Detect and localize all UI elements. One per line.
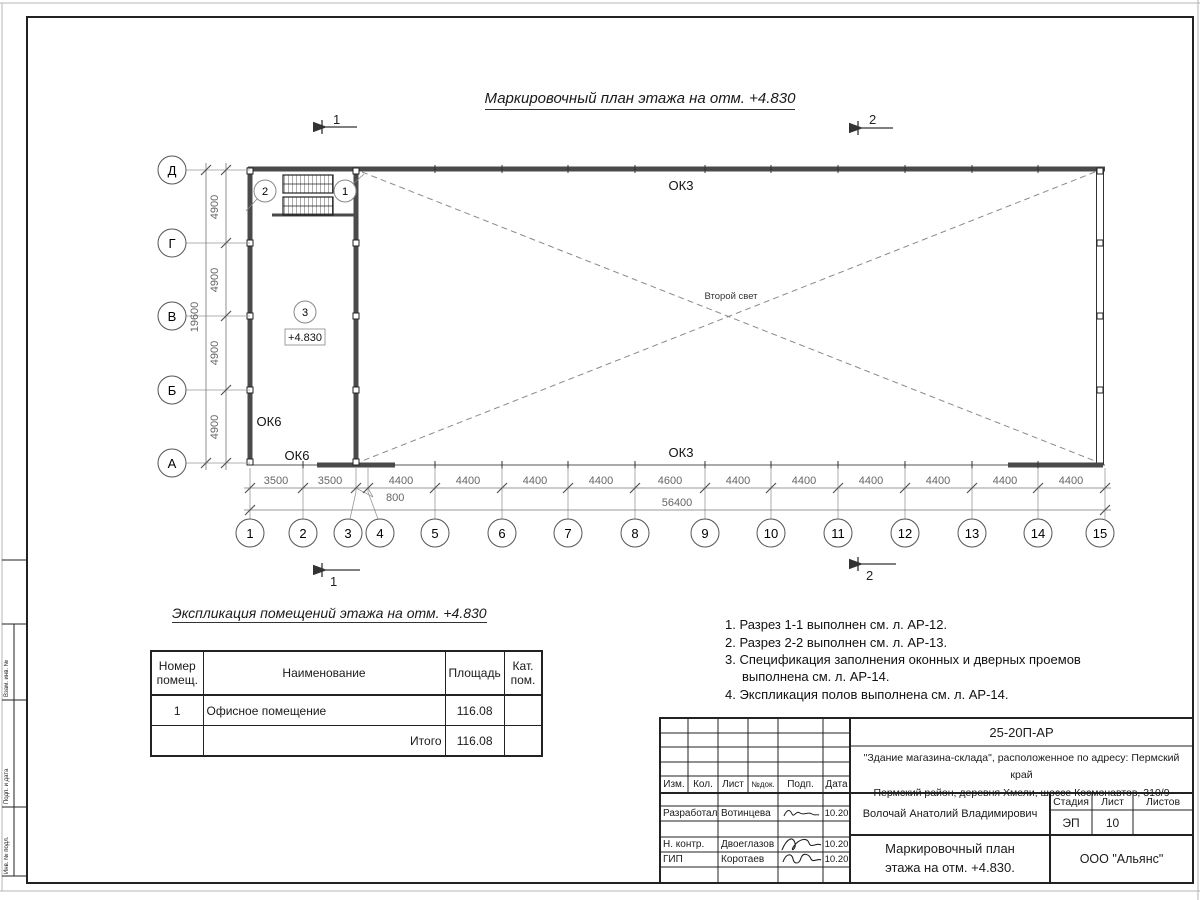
role-label: ГИП bbox=[663, 854, 718, 865]
signature-korotaev bbox=[779, 850, 823, 868]
col-axis-label: 8 bbox=[631, 526, 638, 541]
dim-total-label: 19600 bbox=[189, 302, 201, 333]
side-strip-label: Инв. № подл. bbox=[4, 837, 10, 874]
room-number-cell: 1 bbox=[151, 695, 203, 726]
window-label-ok6-lower: ОК6 bbox=[285, 448, 310, 463]
side-strip-label: Взам. инв. № bbox=[4, 660, 10, 697]
room-name-cell: Офисное помещение bbox=[203, 695, 445, 726]
dim-label: 4400 bbox=[993, 475, 1017, 487]
dim-label: 4400 bbox=[389, 475, 413, 487]
room-mark-2: 2 bbox=[262, 186, 268, 198]
sheet-value: 10 bbox=[1092, 810, 1133, 835]
table-header-row: Номер помещ. Наименование Площадь Кат. п… bbox=[151, 651, 542, 695]
rev-col-dok: №док. bbox=[748, 776, 778, 793]
col-header-category: Кат. пом. bbox=[504, 651, 542, 695]
room-area-cell: 116.08 bbox=[445, 695, 504, 726]
row-axis-label: Г bbox=[168, 236, 175, 251]
rev-col-podp: Подп. bbox=[778, 776, 823, 793]
col-axis-label: 11 bbox=[831, 526, 845, 541]
col-header-name: Наименование bbox=[203, 651, 445, 695]
wall-ticks bbox=[303, 165, 1038, 469]
company-name: ООО "Альянс" bbox=[1050, 835, 1193, 883]
empty-cell bbox=[151, 726, 203, 757]
page-title: Маркировочный план этажа на отм. +4.830 bbox=[390, 90, 890, 107]
section-mark-1-bottom: 1 bbox=[330, 574, 337, 589]
dim-label: 4400 bbox=[523, 475, 547, 487]
section-mark-1-top: 1 bbox=[333, 112, 340, 127]
walls bbox=[248, 167, 1105, 465]
col-axis-label: 7 bbox=[564, 526, 571, 541]
side-strip-grid bbox=[2, 560, 27, 876]
col-axis-label: 6 bbox=[498, 526, 505, 541]
dim-label: 4400 bbox=[859, 475, 883, 487]
role-name: Двоеглазов bbox=[721, 839, 779, 850]
table-total-row: Итого 116.08 bbox=[151, 726, 542, 757]
rev-col-izm: Изм. bbox=[660, 776, 688, 793]
dim-label: 4400 bbox=[926, 475, 950, 487]
row-axis-bubbles: Д Г В Б А bbox=[158, 156, 186, 477]
empty-cell bbox=[504, 726, 542, 757]
room-marks: 2 1 3 bbox=[246, 174, 364, 323]
dim-label: 4900 bbox=[209, 268, 221, 292]
role-label: Разработал bbox=[663, 808, 718, 819]
role-label: Н. контр. bbox=[663, 839, 718, 850]
role-date: 10.20 bbox=[823, 837, 850, 852]
signature-votintseva bbox=[781, 806, 821, 821]
drawing-title-line2: этажа на отм. +4.830. bbox=[850, 859, 1050, 878]
drawing-title-line1: Маркировочный план bbox=[850, 840, 1050, 859]
side-strip-label: Подп. и дата bbox=[4, 769, 10, 804]
column-markers bbox=[247, 168, 1103, 465]
note-item: 4. Экспликация полов выполнена см. л. АР… bbox=[725, 687, 1150, 704]
table-row: 1 Офисное помещение 116.08 bbox=[151, 695, 542, 726]
room-mark-3: 3 bbox=[302, 307, 308, 319]
col-axis-label: 15 bbox=[1093, 526, 1107, 541]
room-mark-1: 1 bbox=[342, 186, 348, 198]
explication-table: Номер помещ. Наименование Площадь Кат. п… bbox=[150, 650, 543, 757]
second-light-diagonals bbox=[362, 172, 1095, 461]
dim-label: 4400 bbox=[589, 475, 613, 487]
staircase bbox=[283, 175, 333, 215]
col-axis-bubbles: 1 2 3 4 5 6 7 8 9 10 11 12 13 14 15 bbox=[236, 519, 1114, 547]
sheet-label: Лист bbox=[1092, 793, 1133, 810]
section-mark-2-top: 2 bbox=[869, 112, 876, 127]
role-date: 10.20 bbox=[823, 806, 850, 821]
window-label-ok3-bottom: ОК3 bbox=[669, 445, 694, 460]
col-axis-label: 10 bbox=[764, 526, 778, 541]
col-axis-label: 14 bbox=[1031, 526, 1045, 541]
window-label-ok3-top: ОК3 bbox=[669, 178, 694, 193]
rev-col-kol: Кол. bbox=[688, 776, 718, 793]
role-name: Коротаев bbox=[721, 854, 779, 865]
col-axis-label: 12 bbox=[898, 526, 912, 541]
col-axis-label: 4 bbox=[376, 526, 383, 541]
dim-label: 4400 bbox=[792, 475, 816, 487]
window-label-ok6-upper: ОК6 bbox=[257, 414, 282, 429]
dim-label: 3500 bbox=[318, 475, 342, 487]
project-name-line1: "Здание магазина-склада", расположенное … bbox=[852, 750, 1191, 785]
col-axis-label: 1 bbox=[246, 526, 253, 541]
doc-number: 25-20П-АР bbox=[850, 718, 1193, 746]
dim-label: 4400 bbox=[456, 475, 480, 487]
role-date: 10.20 bbox=[823, 852, 850, 867]
elevation-label: +4.830 bbox=[288, 332, 322, 344]
row-axis-label: Д bbox=[168, 163, 177, 178]
explication-title: Экспликация помещений этажа на отм. +4.8… bbox=[172, 605, 487, 623]
notes-list: 1. Разрез 1-1 выполнен см. л. АР-12. 2. … bbox=[725, 617, 1150, 704]
dim-label: 4400 bbox=[726, 475, 750, 487]
col-header-area: Площадь bbox=[445, 651, 504, 695]
total-area-cell: 116.08 bbox=[445, 726, 504, 757]
role-name: Вотинцева bbox=[721, 808, 777, 819]
dim-label: 4400 bbox=[1059, 475, 1083, 487]
sheets-value bbox=[1133, 810, 1193, 835]
note-item: 1. Разрез 1-1 выполнен см. л. АР-12. bbox=[725, 617, 1150, 634]
note-item: 2. Разрез 2-2 выполнен см. л. АР-13. bbox=[725, 635, 1150, 652]
rev-col-data: Дата bbox=[823, 776, 850, 793]
dim-label: 4600 bbox=[658, 475, 682, 487]
row-axis-label: А bbox=[168, 456, 177, 471]
dim-label: 4900 bbox=[209, 415, 221, 439]
col-axis-label: 3 bbox=[344, 526, 351, 541]
room-category-cell bbox=[504, 695, 542, 726]
row-axis-label: В bbox=[168, 309, 177, 324]
chief-name: Волочай Анатолий Владимирович bbox=[850, 793, 1050, 835]
dim-label: 4900 bbox=[209, 341, 221, 365]
col-header-number: Номер помещ. bbox=[151, 651, 203, 695]
total-label-cell: Итого bbox=[203, 726, 445, 757]
note-item: 3. Спецификация заполнения оконных и две… bbox=[725, 652, 1150, 685]
dim-label: 3500 bbox=[264, 475, 288, 487]
row-axis-label: Б bbox=[168, 383, 177, 398]
stage-label: Стадия bbox=[1050, 793, 1092, 810]
dim-total-label: 56400 bbox=[662, 497, 693, 509]
rev-col-list: Лист bbox=[718, 776, 748, 793]
col-axis-label: 9 bbox=[701, 526, 708, 541]
col-axis-label: 5 bbox=[431, 526, 438, 541]
second-light-label: Второй свет bbox=[704, 291, 758, 302]
section-mark-2-bottom: 2 bbox=[866, 568, 873, 583]
stage-value: ЭП bbox=[1050, 810, 1092, 835]
dim-label: 4900 bbox=[209, 195, 221, 219]
col-axis-label: 13 bbox=[965, 526, 979, 541]
col-axis-label: 2 bbox=[299, 526, 306, 541]
sheets-label: Листов bbox=[1133, 793, 1193, 810]
dim-offset-label: 800 bbox=[386, 492, 404, 504]
